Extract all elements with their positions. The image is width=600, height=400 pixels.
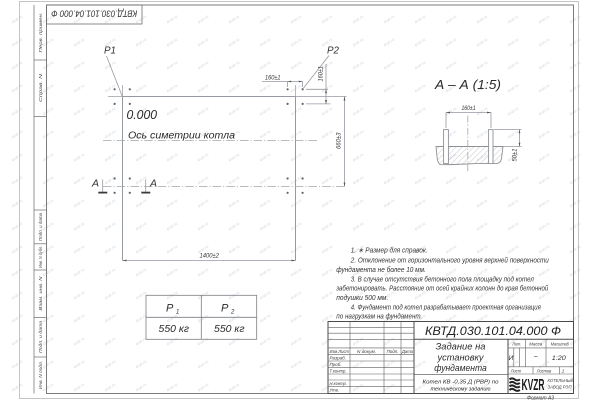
svg-text:Инв. N дубл.: Инв. N дубл. — [38, 246, 43, 268]
svg-text:1: 1 — [562, 368, 565, 374]
svg-text:КВТД.030.101.04.000 Ф: КВТД.030.101.04.000 Ф — [425, 324, 561, 338]
svg-text:1. ∗ Размер для справок.: 1. ∗ Размер для справок. — [351, 246, 428, 254]
svg-text:Т.контр.: Т.контр. — [330, 369, 347, 375]
svg-text:Лит.: Лит. — [511, 342, 521, 348]
svg-text:Н.контр.: Н.контр. — [330, 381, 348, 387]
svg-text:Р2: Р2 — [327, 46, 339, 57]
svg-text:А: А — [149, 178, 157, 190]
svg-text:по нагрузкам на фундамент.: по нагрузкам на фундамент. — [336, 313, 422, 321]
svg-text:2: 2 — [230, 310, 235, 316]
svg-text:1: 1 — [176, 310, 179, 316]
svg-text:Дата: Дата — [401, 349, 413, 355]
svg-text:Подп. и дата: Подп. и дата — [38, 321, 43, 353]
svg-text:Задание на: Задание на — [436, 342, 486, 352]
svg-text:Утв.: Утв. — [330, 387, 340, 393]
svg-text:забетонировать. Расстояние от: забетонировать. Расстояние от осей крайн… — [335, 285, 548, 293]
svg-text:фундамента не более 10 мм.: фундамента не более 10 мм. — [336, 266, 426, 274]
svg-text:А – А (1:5): А – А (1:5) — [434, 77, 501, 92]
svg-text:ЗАВОД РЭП: ЗАВОД РЭП — [548, 384, 573, 389]
svg-text:160±1: 160±1 — [319, 66, 325, 82]
svg-text:Масса: Масса — [529, 342, 542, 348]
svg-text:550 кг: 550 кг — [159, 324, 190, 335]
svg-text:4. Фундамент под котел разраба: 4. Фундамент под котел разрабатывает про… — [351, 303, 541, 311]
svg-text:А: А — [91, 178, 99, 190]
svg-text:1:20: 1:20 — [552, 355, 566, 362]
svg-text:550 кг: 550 кг — [214, 324, 245, 335]
svg-text:Ось симетрии котла: Ось симетрии котла — [128, 131, 235, 142]
svg-text:Подп.: Подп. — [387, 349, 399, 355]
svg-text:–: – — [533, 354, 538, 361]
svg-text:И: И — [509, 355, 514, 362]
svg-text:фундамента: фундамента — [434, 363, 487, 373]
svg-text:Листов: Листов — [536, 368, 552, 374]
svg-text:3. В случае отсутствия бетонно: 3. В случае отсутствия бетонного пола пл… — [351, 275, 534, 283]
svg-text:Р: Р — [221, 303, 229, 315]
svg-text:Формат А3: Формат А3 — [527, 395, 554, 400]
svg-text:техническому заданию: техническому заданию — [431, 386, 492, 392]
svg-text:Разраб.: Разраб. — [330, 356, 347, 362]
svg-text:KVZR: KVZR — [522, 377, 545, 394]
svg-text:Взам. инв. N: Взам. инв. N — [38, 276, 43, 311]
svg-text:КВТД.030.101.04.000 Ф: КВТД.030.101.04.000 Ф — [51, 9, 137, 19]
svg-text:660±3: 660±3 — [336, 132, 343, 149]
svg-text:0.000: 0.000 — [127, 108, 158, 122]
svg-text:160±1: 160±1 — [462, 106, 476, 112]
svg-text:Р1: Р1 — [104, 46, 116, 57]
svg-text:Котел КВ -0,35 Д (РВР) по: Котел КВ -0,35 Д (РВР) по — [423, 380, 499, 386]
svg-text:2. Отклонение от горизонтально: 2. Отклонение от горизонтального уровня … — [350, 257, 549, 265]
svg-text:Масштаб: Масштаб — [551, 342, 569, 348]
svg-text:Подп. и дата: Подп. и дата — [38, 213, 43, 241]
svg-text:50±1: 50±1 — [512, 149, 518, 162]
svg-text:1400±2: 1400±2 — [200, 253, 220, 260]
svg-text:подушки 500 мм.: подушки 500 мм. — [336, 294, 388, 302]
svg-text:КОТЕЛЬНЫЙ: КОТЕЛЬНЫЙ — [548, 376, 575, 383]
svg-text:Инв. N подл.: Инв. N подл. — [38, 361, 43, 389]
svg-text:Справ. N: Справ. N — [38, 73, 43, 102]
svg-text:N докум.: N докум. — [357, 349, 376, 355]
svg-text:Проб.: Проб. — [330, 362, 342, 368]
svg-text:Изм.Лист: Изм.Лист — [330, 349, 350, 355]
svg-text:установку: установку — [436, 353, 484, 363]
svg-text:160±1: 160±1 — [265, 75, 281, 81]
svg-text:Перв. примен.: Перв. примен. — [38, 13, 43, 53]
svg-text:Лист: Лист — [510, 368, 521, 374]
svg-text:Р: Р — [166, 303, 174, 315]
